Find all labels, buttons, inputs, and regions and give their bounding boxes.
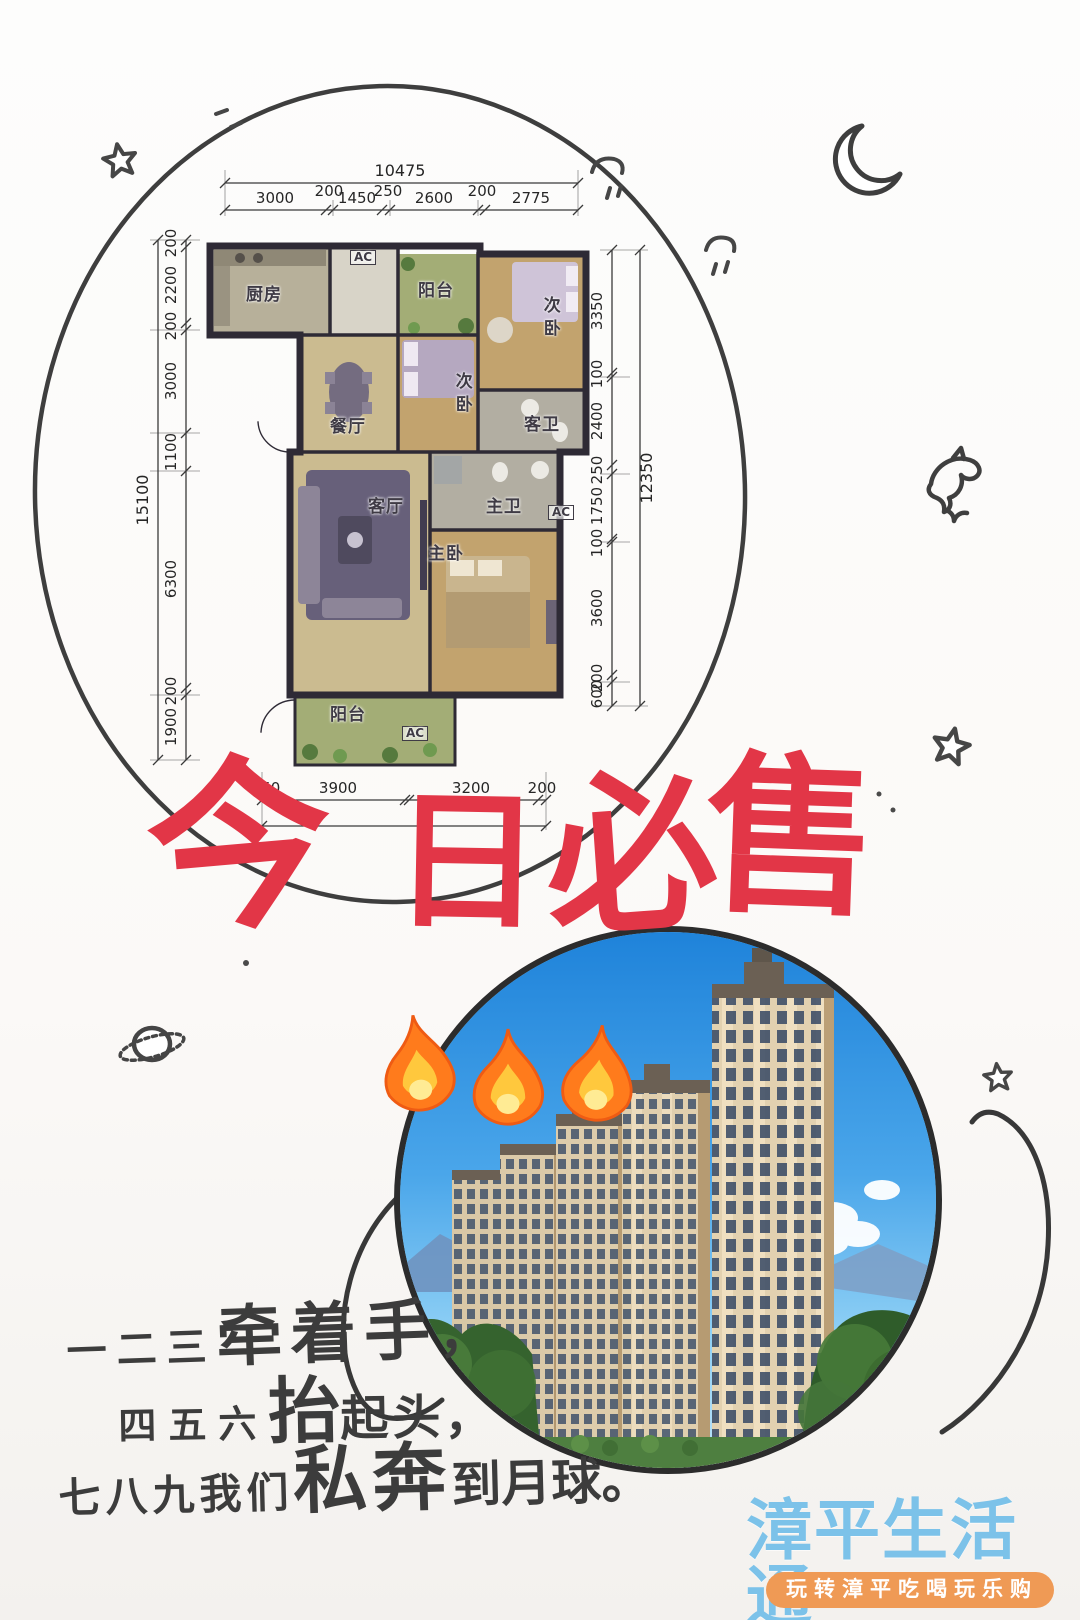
- fire-icon: [367, 1007, 469, 1120]
- brand-tagline-badge: 玩转漳平吃喝玩乐购: [766, 1572, 1054, 1608]
- headline-char: 必: [539, 764, 723, 948]
- tower: [556, 1100, 628, 1464]
- moon-icon: [835, 126, 900, 193]
- star-icon: [101, 141, 138, 177]
- star-icon: [983, 1062, 1013, 1091]
- poster: 10475 3000 200 1450 250 2600 200 2775 15…: [0, 0, 1080, 1620]
- slogan-text: 私奔: [292, 1417, 453, 1528]
- comet-icon: [216, 110, 734, 274]
- headline-char: 日: [391, 787, 544, 940]
- slogan-text: 到月球。: [450, 1440, 652, 1517]
- headline-char: 今: [140, 747, 340, 947]
- dolphin-icon: [929, 448, 980, 521]
- slogan-line-3: 七八九我们 私奔 到月球。: [57, 1412, 653, 1534]
- fire-icon: [462, 1026, 554, 1130]
- fire-icon: [548, 1018, 649, 1130]
- saturn-icon: [118, 1028, 187, 1066]
- star-icon: [930, 725, 972, 766]
- headline-char: 售: [702, 749, 880, 927]
- brand-tagline: 玩转漳平吃喝玩乐购: [786, 1577, 1038, 1601]
- slogan-text: 七八九我们: [58, 1459, 295, 1526]
